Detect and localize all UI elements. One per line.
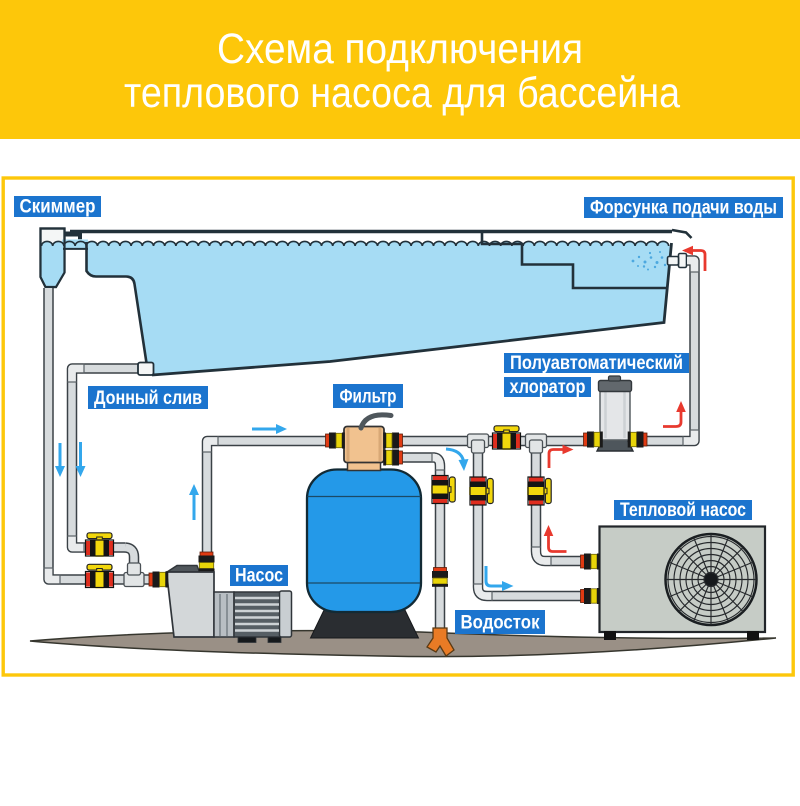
svg-text:Схема подключения: Схема подключения — [217, 25, 583, 73]
svg-text:Скиммер: Скиммер — [20, 197, 96, 218]
svg-text:Тепловой насос: Тепловой насос — [620, 500, 746, 521]
svg-text:Фильтр: Фильтр — [340, 387, 397, 408]
svg-text:хлоратор: хлоратор — [510, 377, 586, 398]
svg-text:Насос: Насос — [235, 566, 283, 587]
svg-text:Форсунка подачи воды: Форсунка подачи воды — [590, 198, 777, 219]
svg-text:Донный слив: Донный слив — [94, 388, 202, 409]
svg-text:теплового насоса для бассейна: теплового насоса для бассейна — [124, 69, 680, 117]
svg-text:Водосток: Водосток — [461, 613, 540, 634]
svg-text:Полуавтоматический: Полуавтоматический — [510, 353, 683, 374]
